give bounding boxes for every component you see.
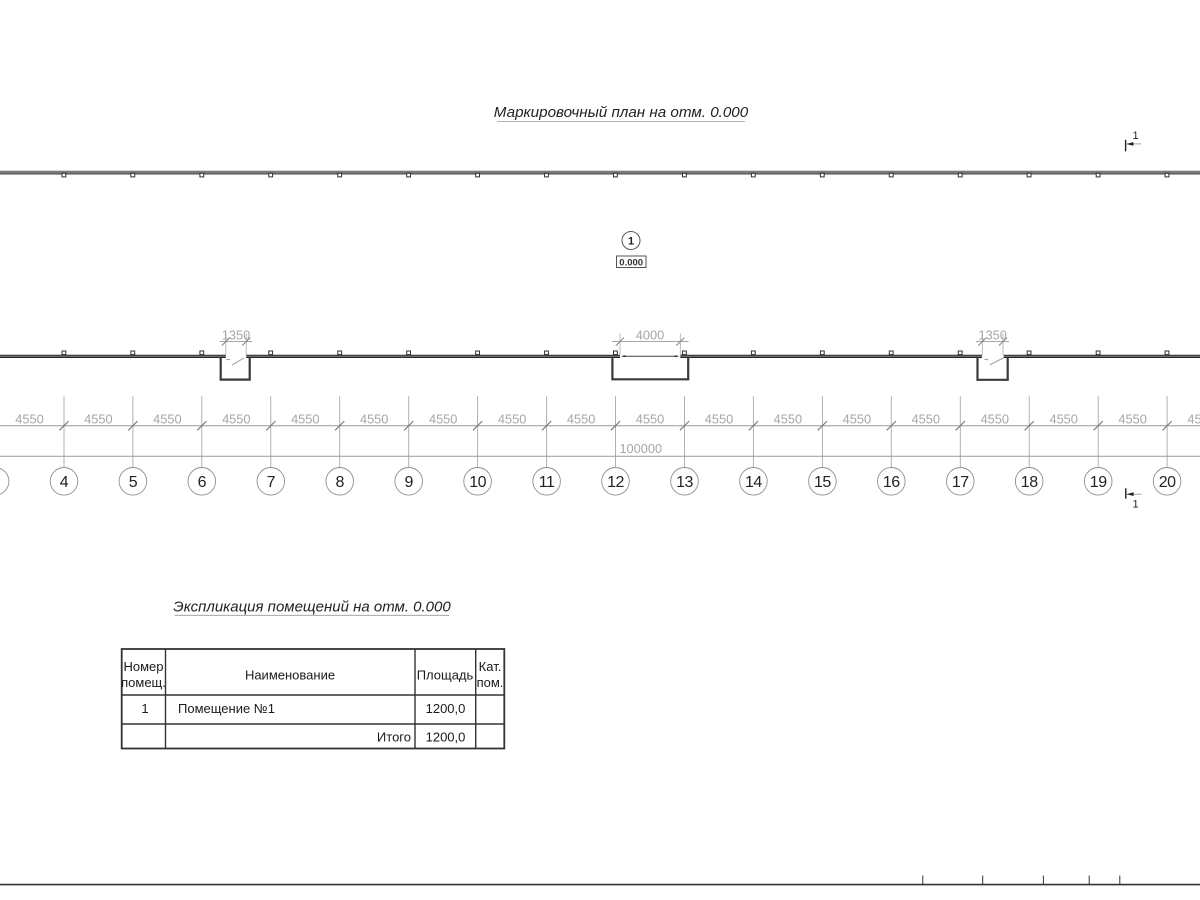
svg-text:4550: 4550 [360, 411, 388, 426]
svg-text:4550: 4550 [981, 411, 1009, 426]
svg-text:4550: 4550 [705, 411, 733, 426]
svg-text:14: 14 [745, 474, 762, 491]
svg-text:4550: 4550 [222, 411, 250, 426]
svg-text:1350: 1350 [222, 328, 250, 343]
svg-text:Итого: Итого [377, 730, 411, 745]
svg-text:12: 12 [607, 474, 624, 491]
svg-text:4550: 4550 [1049, 411, 1077, 426]
svg-text:4550: 4550 [567, 411, 595, 426]
svg-text:5: 5 [129, 474, 138, 491]
svg-text:15: 15 [814, 474, 831, 491]
svg-text:4550: 4550 [429, 411, 457, 426]
svg-text:1: 1 [628, 235, 634, 247]
svg-text:1: 1 [1132, 130, 1138, 142]
svg-text:4550: 4550 [498, 411, 526, 426]
svg-text:4550: 4550 [291, 411, 319, 426]
svg-text:4550: 4550 [153, 411, 181, 426]
svg-text:0.000: 0.000 [619, 258, 643, 269]
svg-text:4: 4 [60, 474, 69, 491]
svg-text:Наименование: Наименование [245, 668, 335, 683]
svg-text:4550: 4550 [774, 411, 802, 426]
svg-text:1: 1 [141, 701, 148, 716]
svg-text:11: 11 [539, 474, 555, 491]
svg-text:4000: 4000 [636, 328, 664, 343]
svg-text:Кат.: Кат. [479, 659, 502, 674]
svg-text:4550: 4550 [1187, 411, 1200, 426]
svg-text:19: 19 [1090, 474, 1107, 491]
svg-text:4550: 4550 [843, 411, 871, 426]
svg-text:13: 13 [676, 474, 693, 491]
svg-text:пом.: пом. [477, 675, 504, 690]
svg-text:Помещение №1: Помещение №1 [178, 701, 275, 716]
svg-text:Площадь: Площадь [417, 668, 474, 683]
svg-text:помещ.: помещ. [121, 675, 166, 690]
svg-text:4550: 4550 [636, 411, 664, 426]
svg-text:Номер: Номер [123, 659, 163, 674]
svg-text:16: 16 [883, 474, 900, 491]
svg-text:6: 6 [198, 474, 207, 491]
svg-text:10: 10 [469, 474, 486, 491]
svg-text:100000: 100000 [619, 441, 662, 456]
svg-text:17: 17 [952, 474, 969, 491]
svg-text:1200,0: 1200,0 [426, 730, 466, 745]
svg-text:1350: 1350 [978, 328, 1006, 343]
svg-text:Маркировочный план на отм. 0.0: Маркировочный план на отм. 0.000 [494, 104, 749, 121]
svg-text:4550: 4550 [1118, 411, 1146, 426]
svg-text:1200,0: 1200,0 [426, 701, 466, 716]
svg-text:1: 1 [1132, 499, 1138, 511]
svg-text:7: 7 [267, 474, 276, 491]
svg-text:4550: 4550 [912, 411, 940, 426]
svg-text:8: 8 [335, 474, 344, 491]
svg-text:Экспликация помещений на отм.: Экспликация помещений на отм. 0.000 [173, 599, 451, 616]
svg-text:18: 18 [1021, 474, 1038, 491]
svg-text:4550: 4550 [15, 411, 43, 426]
svg-text:4550: 4550 [84, 411, 112, 426]
svg-text:9: 9 [404, 474, 413, 491]
svg-text:20: 20 [1159, 474, 1176, 491]
